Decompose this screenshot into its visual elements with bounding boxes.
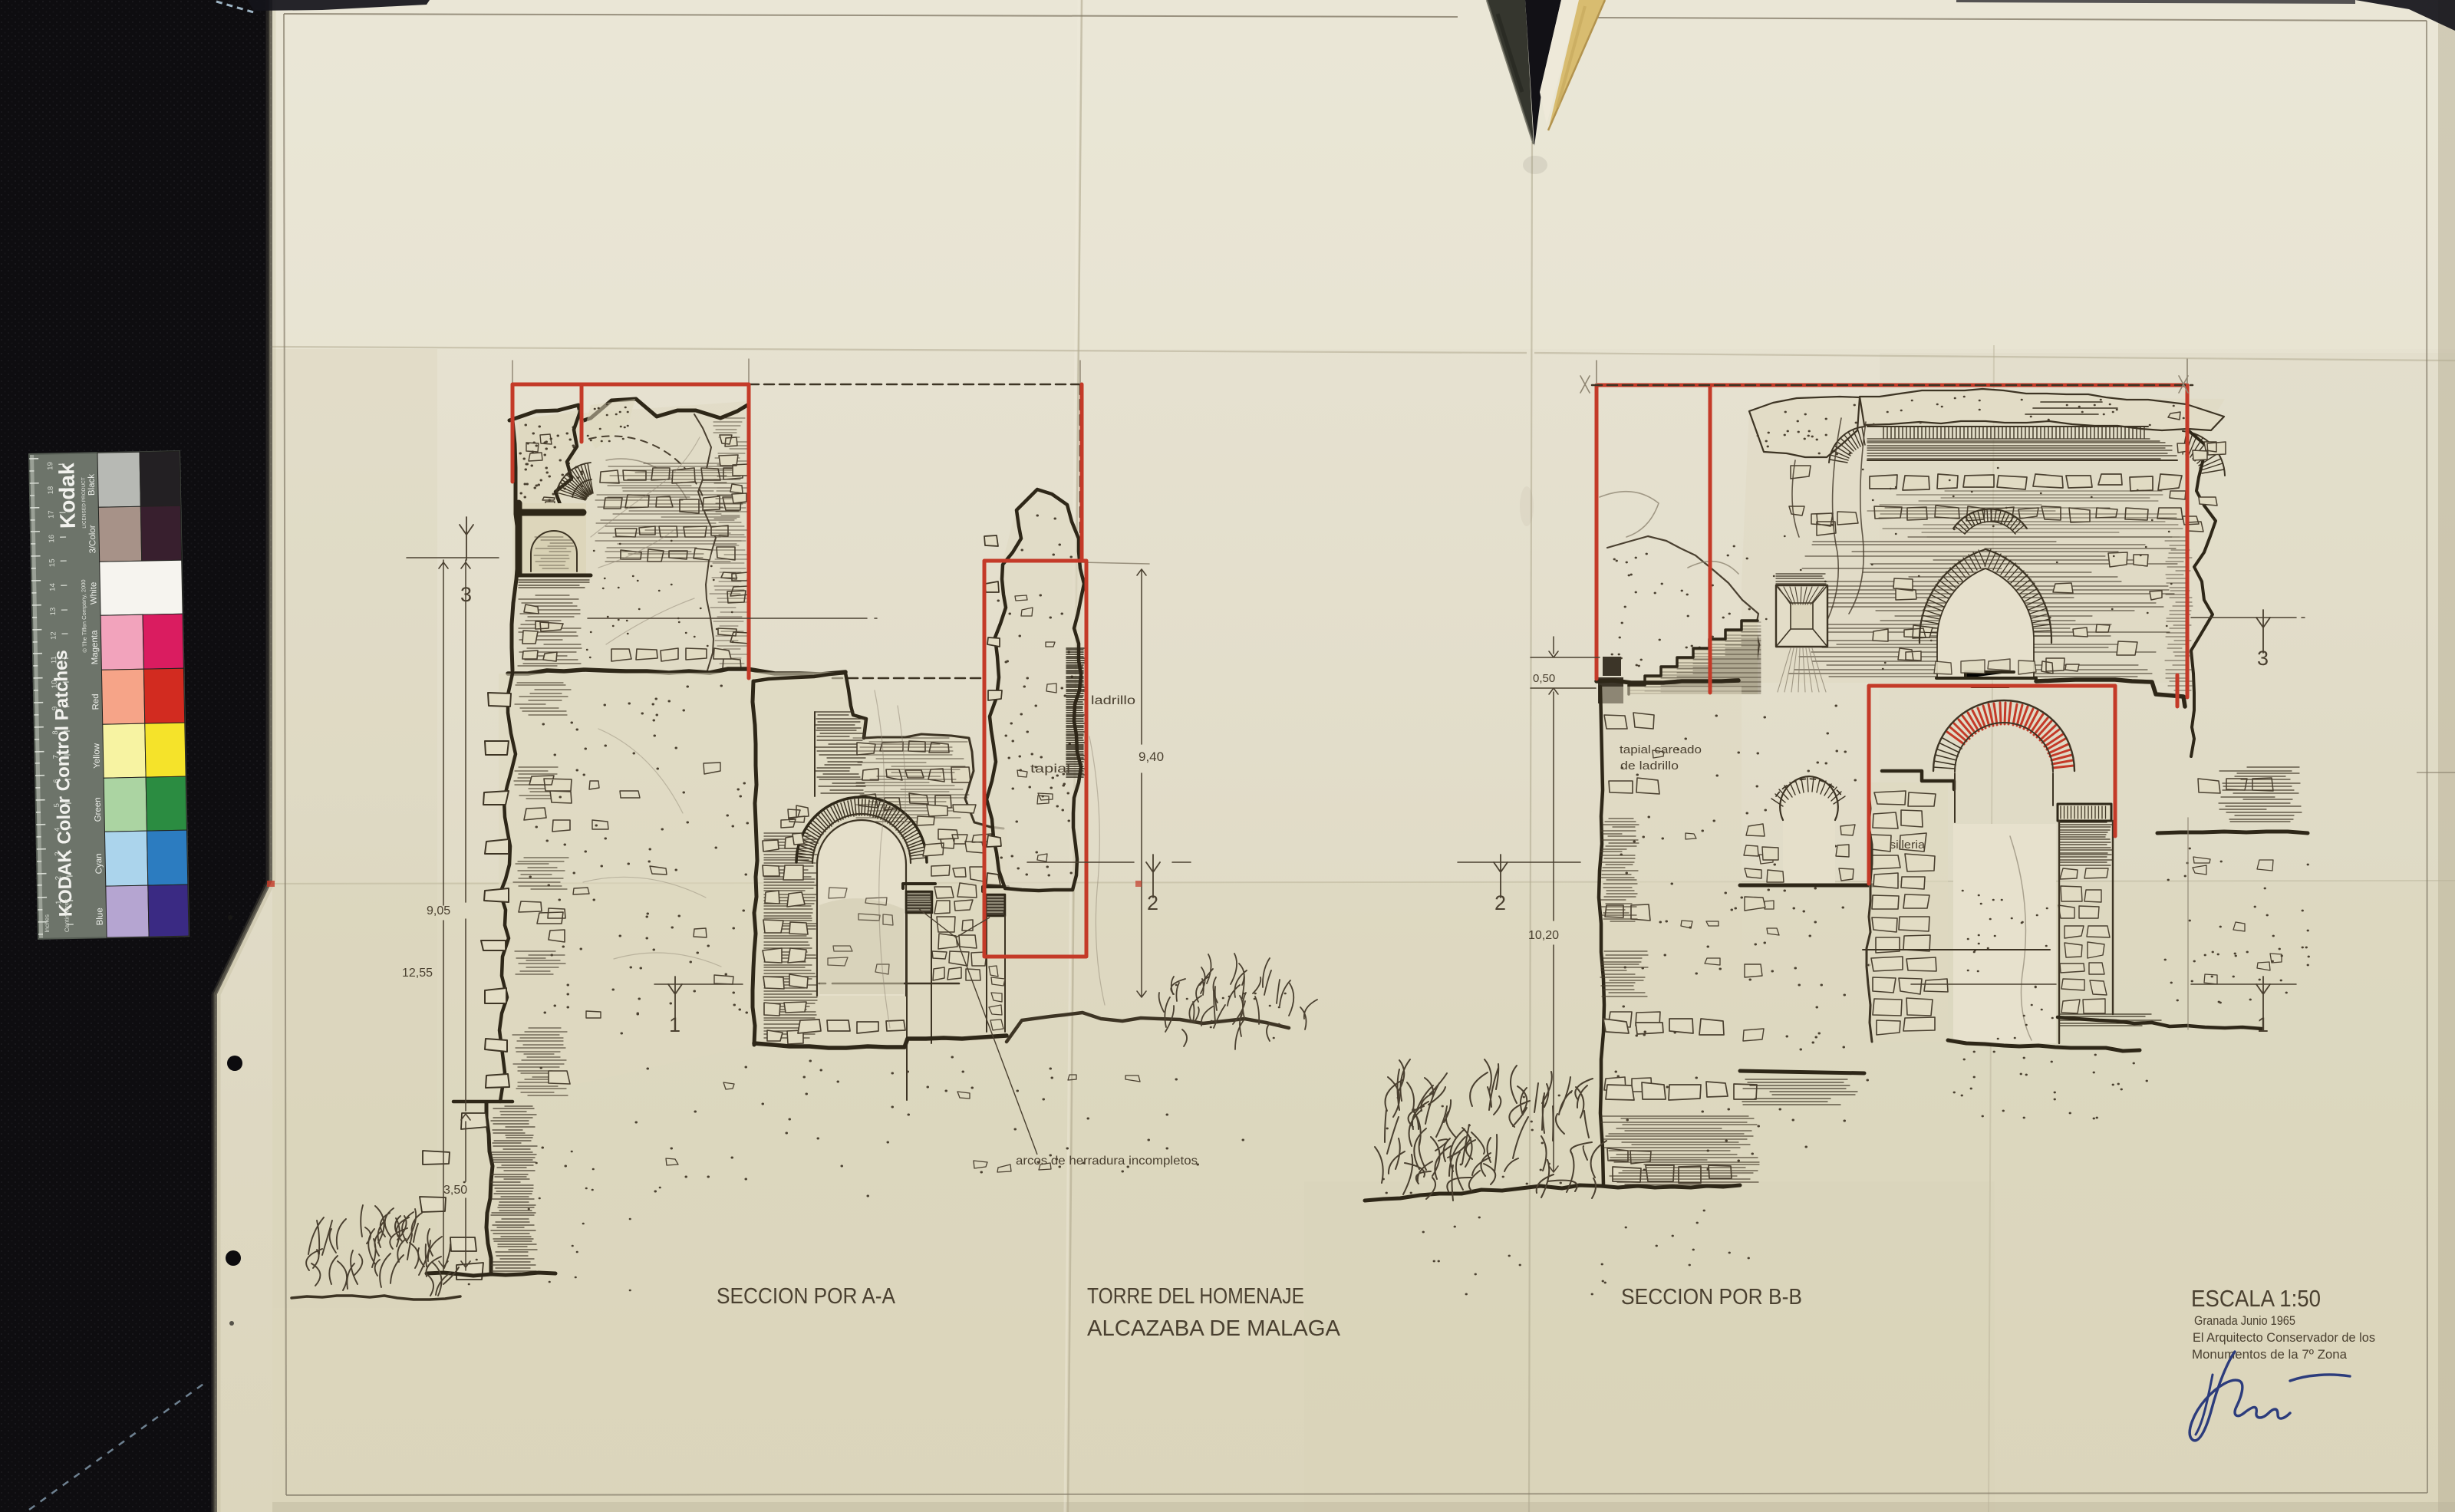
svg-text:arcos de herradura incompletos: arcos de herradura incompletos bbox=[1016, 1155, 1198, 1168]
svg-text:3: 3 bbox=[460, 583, 472, 606]
svg-text:9,05: 9,05 bbox=[427, 904, 450, 917]
svg-text:3/Color: 3/Color bbox=[88, 525, 98, 553]
svg-text:tapial: tapial bbox=[1030, 763, 1070, 776]
svg-text:ladrillo: ladrillo bbox=[1091, 694, 1135, 707]
svg-text:1: 1 bbox=[2257, 1013, 2269, 1036]
svg-text:3,50: 3,50 bbox=[443, 1184, 467, 1197]
svg-text:SECCION POR B-B: SECCION POR B-B bbox=[1621, 1285, 1802, 1309]
svg-text:9,40: 9,40 bbox=[1139, 749, 1164, 764]
svg-text:17: 17 bbox=[47, 510, 55, 519]
svg-text:TORRE DEL HOMENAJE: TORRE DEL HOMENAJE bbox=[1087, 1284, 1304, 1309]
svg-text:Inches: Inches bbox=[44, 914, 51, 933]
svg-text:Green: Green bbox=[94, 797, 104, 822]
svg-text:Kodak: Kodak bbox=[54, 463, 80, 529]
svg-text:ALCAZABA DE MALAGA: ALCAZABA DE MALAGA bbox=[1087, 1316, 1341, 1341]
svg-text:Centimetres: Centimetres bbox=[63, 899, 71, 932]
svg-text:Red: Red bbox=[91, 693, 101, 710]
svg-text:2: 2 bbox=[1494, 891, 1506, 914]
svg-text:18: 18 bbox=[47, 486, 55, 495]
svg-text:de ladrillo: de ladrillo bbox=[1620, 759, 1679, 772]
svg-text:White: White bbox=[89, 582, 99, 605]
svg-text:Yellow: Yellow bbox=[92, 743, 102, 769]
svg-text:ESCALA 1:50: ESCALA 1:50 bbox=[2191, 1285, 2321, 1312]
svg-text:14: 14 bbox=[48, 583, 57, 591]
svg-text:SECCION POR A-A: SECCION POR A-A bbox=[717, 1284, 896, 1309]
svg-text:Blue: Blue bbox=[95, 908, 104, 925]
svg-text:3: 3 bbox=[2257, 647, 2269, 670]
svg-text:12: 12 bbox=[49, 631, 58, 640]
svg-text:© The Tiffen Company, 2000: © The Tiffen Company, 2000 bbox=[80, 579, 88, 652]
svg-text:Black: Black bbox=[87, 474, 97, 496]
svg-text:2: 2 bbox=[1147, 891, 1158, 914]
svg-text:15: 15 bbox=[48, 558, 57, 567]
svg-text:16: 16 bbox=[48, 535, 56, 543]
svg-text:Monumentos de la 7º Zona: Monumentos de la 7º Zona bbox=[2192, 1347, 2348, 1362]
svg-text:silleria: silleria bbox=[1890, 838, 1926, 852]
svg-text:LICENSED PRODUCT: LICENSED PRODUCT bbox=[81, 477, 87, 529]
svg-text:Magenta: Magenta bbox=[90, 630, 100, 665]
svg-text:10,20: 10,20 bbox=[1528, 929, 1559, 942]
svg-text:Cyan: Cyan bbox=[94, 853, 104, 874]
svg-text:El Arquitecto Conservador de l: El Arquitecto Conservador de los bbox=[2193, 1330, 2375, 1345]
svg-text:Granada Junio 1965: Granada Junio 1965 bbox=[2194, 1313, 2295, 1328]
svg-text:12,55: 12,55 bbox=[402, 967, 433, 980]
svg-text:0,50: 0,50 bbox=[1533, 672, 1555, 685]
svg-text:13: 13 bbox=[49, 608, 58, 616]
svg-text:1: 1 bbox=[669, 1013, 680, 1036]
svg-text:19: 19 bbox=[46, 462, 54, 470]
svg-text:tapial careado: tapial careado bbox=[1620, 743, 1702, 756]
